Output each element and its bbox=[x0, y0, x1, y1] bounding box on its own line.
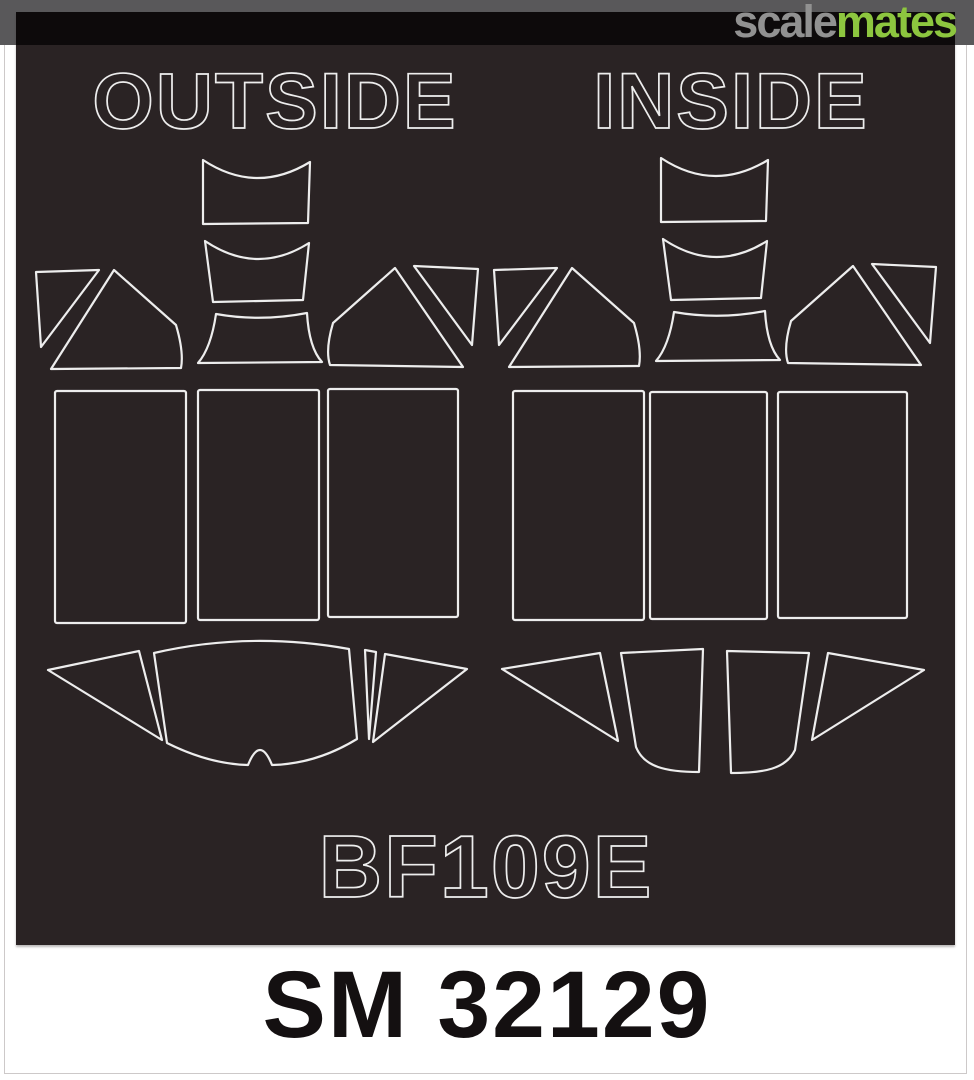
scalemates-logo: scalemates bbox=[733, 0, 956, 44]
product-code: SM 32129 bbox=[0, 958, 974, 1053]
mask-sheet-background bbox=[16, 12, 955, 945]
product-image: OUTSIDE INSIDE BF109E bbox=[0, 0, 974, 1080]
inside-panel-label: INSIDE bbox=[593, 56, 868, 145]
mask-sheet: OUTSIDE INSIDE BF109E bbox=[16, 12, 955, 945]
outside-panel-label: OUTSIDE bbox=[92, 56, 457, 145]
scalemates-logo-scale: scale bbox=[733, 0, 836, 47]
mask-sheet-graphic: OUTSIDE INSIDE BF109E bbox=[16, 12, 955, 945]
scalemates-logo-mates: mates bbox=[836, 0, 956, 47]
subject-label: BF109E bbox=[319, 817, 654, 916]
